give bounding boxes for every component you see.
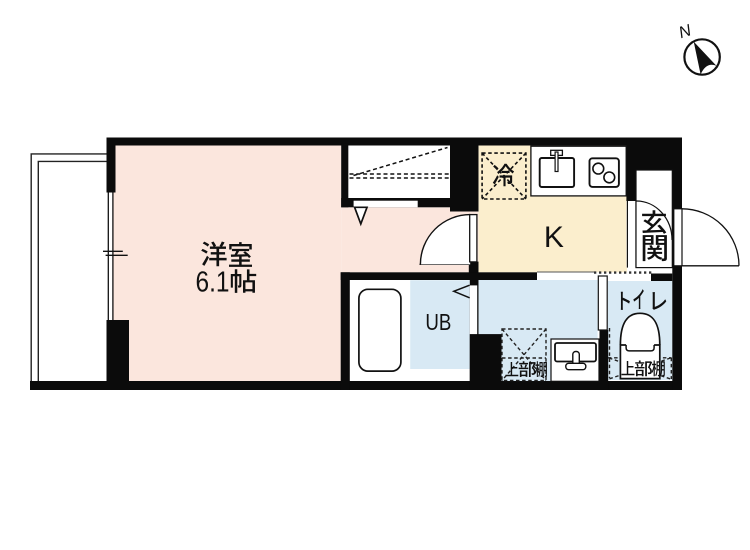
svg-text:6.1: 6.1 bbox=[196, 267, 230, 299]
svg-text:K: K bbox=[544, 221, 564, 254]
svg-text:UB: UB bbox=[425, 309, 451, 335]
